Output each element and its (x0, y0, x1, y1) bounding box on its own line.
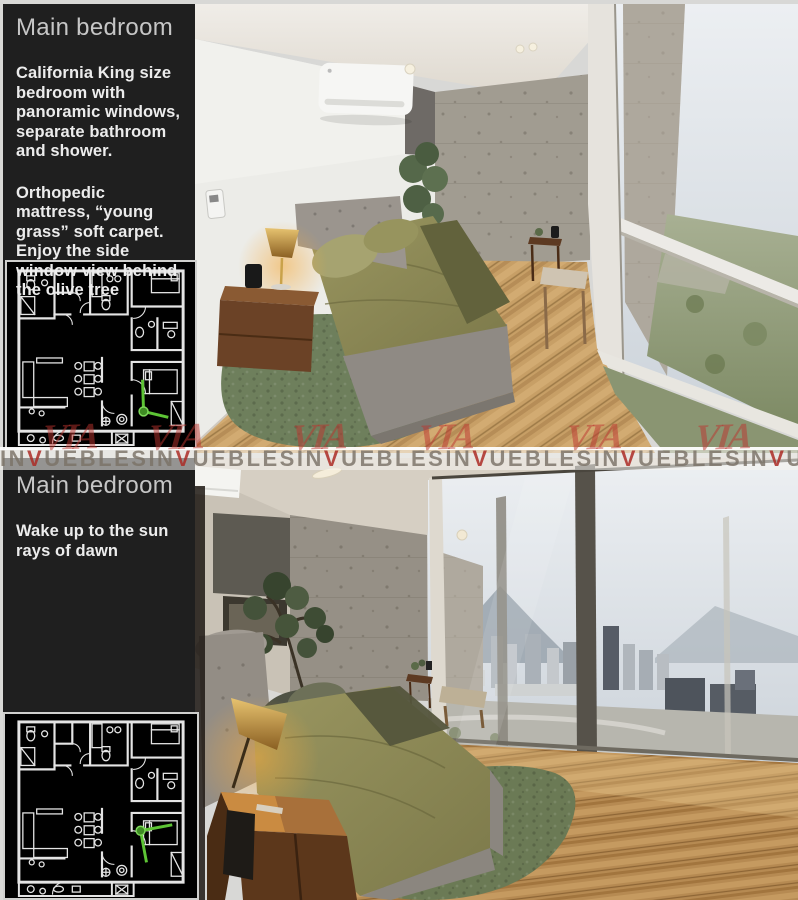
watermark-letters: UEBLES (786, 447, 798, 470)
section-paragraph: Orthopedic mattress, “young grass” soft … (16, 184, 183, 301)
section-title: Main bedroom (16, 14, 183, 42)
window-mullion (575, 464, 597, 758)
watermark-red-letter: V (769, 447, 786, 470)
real-estate-listing-collage: Main bedroom California King size bedroo… (0, 0, 798, 900)
watermark-red-letter: V (621, 447, 638, 470)
watermark-letters: IN (148, 447, 175, 470)
photo-bedroom-daylight (195, 4, 798, 453)
watermark-letters: UEBLES (638, 447, 742, 470)
decor-box (223, 810, 255, 880)
watermark-red-letter: V (27, 447, 44, 470)
watermark-strip-text: INVUEBLESINVUEBLESINVUEBLESINVUEBLESINVU… (0, 449, 798, 469)
section-title: Main bedroom (16, 472, 183, 500)
watermark-letters: UEBLES (44, 447, 148, 470)
camera-position-marker (136, 825, 172, 863)
photo-bedroom-city-view (195, 458, 798, 900)
watermark-letters: IN (0, 447, 27, 470)
watermark-strip: INVUEBLESINVUEBLESINVUEBLESINVUEBLESINVU… (0, 447, 798, 470)
watermark-red-letter: V (324, 447, 341, 470)
speaker (245, 264, 262, 288)
section-paragraph: Wake up to the sun rays of dawn (16, 522, 183, 561)
watermark-red-letter: V (175, 447, 192, 470)
watermark-letters: UEBLES (193, 447, 297, 470)
watermark-red-letter: V (472, 447, 489, 470)
section-paragraph: California King size bedroom with panora… (16, 64, 183, 162)
watermark-letters: IN (297, 447, 324, 470)
watermark-letters: UEBLES (341, 447, 445, 470)
watermark-letters: IN (445, 447, 472, 470)
watermark-letters: IN (742, 447, 769, 470)
thermostat (206, 189, 226, 219)
watermark-letters: IN (594, 447, 621, 470)
floor-plan-2 (3, 712, 199, 900)
camera-position-marker (139, 380, 168, 418)
watermark-letters: UEBLES (490, 447, 594, 470)
